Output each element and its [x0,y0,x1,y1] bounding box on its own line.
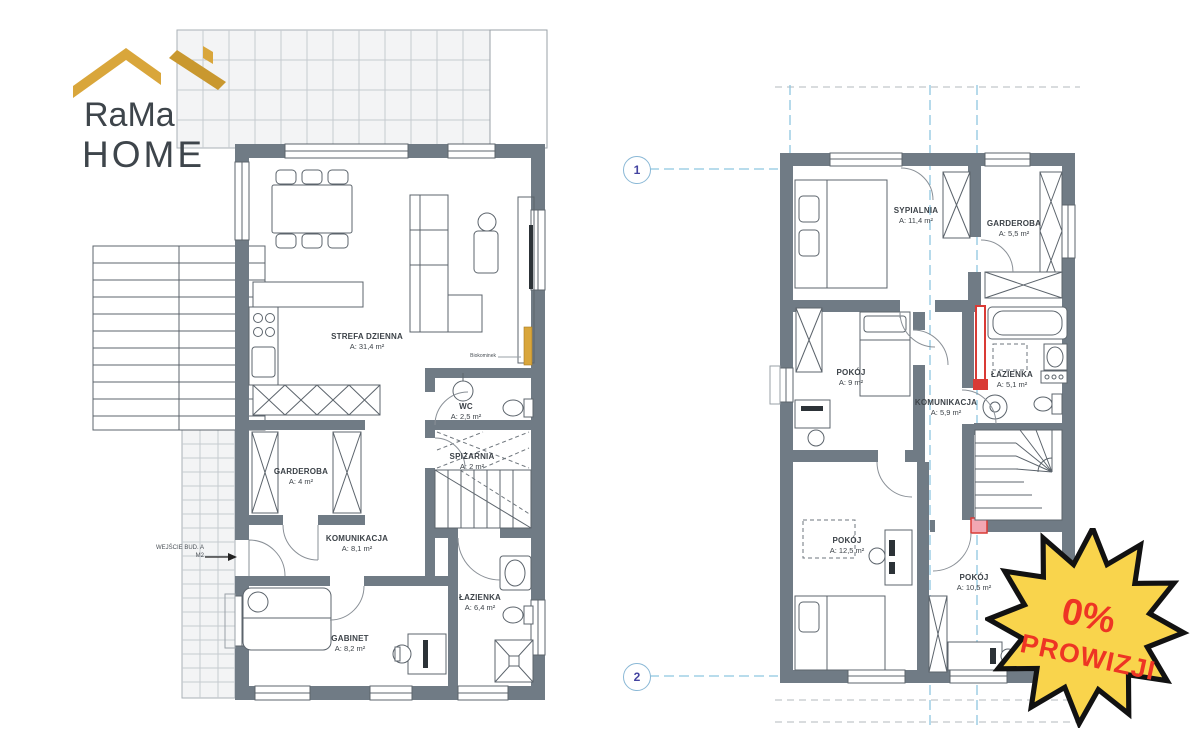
logo-text-home: HOME [82,134,205,176]
radiator [973,306,988,390]
room-label-komunikacja-ground: KOMUNIKACJA A: 8,1 m² [326,534,388,554]
bedroom-main-furniture [795,168,970,288]
promo-badge: 0% PROWIZJI [985,528,1191,728]
room-label-garderoba-upper: GARDEROBA A: 5,5 m² [987,219,1041,239]
room-label-spizarnia: SPIŻARNIA A: 2 m² [450,452,495,472]
fireplace-label: Biokominek [448,353,496,359]
ground-bathroom-fixtures [495,556,533,682]
room-label-strefa-dzienna: STREFA DZIENNA A: 31,4 m² [331,332,403,352]
bio-fireplace [498,327,532,365]
room-label-pokoj-125: POKÓJ A: 12,5 m² [830,536,865,556]
room-label-wc: WC A: 2,5 m² [451,402,481,422]
armchair [474,213,498,273]
upper-stairs [975,430,1062,520]
room-label-pokoj-9: POKÓJ A: 9 m² [836,368,865,388]
entrance-label: WEJŚCIE BUD. A M2 [130,544,204,561]
sofa [410,195,482,332]
logo: RaMa HOME [68,34,248,184]
room-label-lazienka-upper: ŁAZIENKA A: 5,1 m² [991,370,1033,390]
room-label-gabinet: GABINET A: 8,2 m² [331,634,368,654]
room-label-garderoba-ground: GARDEROBA A: 4 m² [274,467,328,487]
axis-bubble-2: 2 [623,663,651,691]
room-label-sypialnia: SYPIALNIA A: 11,4 m² [894,206,938,226]
floor-plan-page: RaMa HOME STREFA DZIENNA A: 31,4 m² WC A… [0,0,1200,731]
room-label-komunikacja-upper: KOMUNIKACJA A: 5,9 m² [915,398,977,418]
room-label-lazienka-ground: ŁAZIENKA A: 6,4 m² [459,593,501,613]
ground-stairs [435,470,531,528]
dining-table [272,170,352,248]
side-path-hatch [182,430,235,698]
axis-bubble-1: 1 [623,156,651,184]
starburst-icon: 0% PROWIZJI [985,528,1191,728]
office-furniture [243,588,446,674]
logo-text-rama: RaMa [84,96,175,135]
